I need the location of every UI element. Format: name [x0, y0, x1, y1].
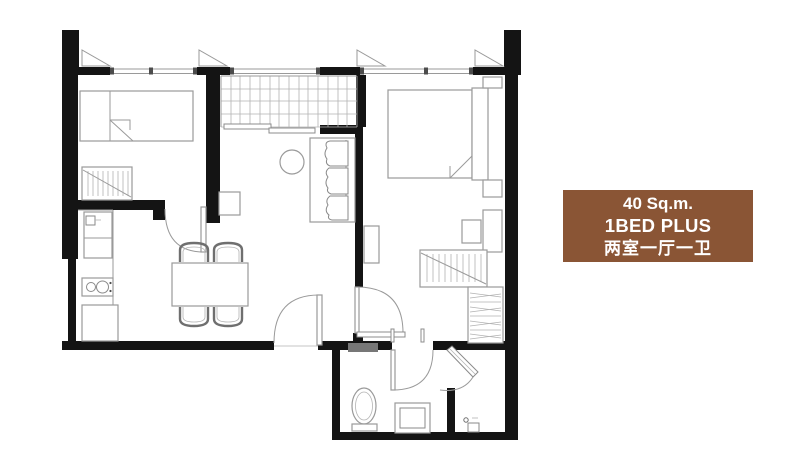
balcony-grid-icon: [221, 76, 357, 127]
wall-bottom-left: [62, 341, 274, 350]
chair-icon: [214, 307, 242, 326]
window-icon: [110, 67, 197, 75]
stove-icon: [82, 278, 113, 296]
floor-drain-icon: [464, 418, 479, 432]
toilet-icon: [352, 388, 377, 431]
round-table-icon: [280, 150, 304, 174]
unit-layout-cn-label: 两室一厅一卫: [604, 238, 712, 259]
unit-area-label: 40 Sq.m.: [623, 193, 693, 214]
wardrobe-icon: [420, 250, 487, 287]
door-swing-icon: [355, 287, 424, 342]
bedroom-2: [364, 77, 503, 343]
kitchen-cabinet-icon: [82, 305, 118, 341]
floor-plan-page: 40 Sq.m. 1BED PLUS 两室一厅一卫: [0, 0, 800, 473]
sofa-icon: [310, 138, 355, 222]
shelf-closet-icon: [468, 287, 503, 343]
wall-shower-divider: [447, 388, 455, 432]
windows: [82, 50, 503, 75]
window-icon: [230, 67, 320, 75]
wall-right: [505, 75, 518, 440]
kitchen-sink-icon: [84, 212, 112, 258]
door-swing-icon: [274, 295, 322, 346]
chair-icon: [214, 243, 242, 262]
desk-icon: [364, 226, 379, 263]
unit-type-label: 1BED PLUS: [605, 214, 712, 237]
window-flag-icon: [82, 50, 503, 66]
entrance-shower-door-icon: [440, 346, 478, 390]
double-bed-icon: [388, 88, 488, 180]
dining-table-icon: [172, 263, 248, 306]
wall-divider-bed1: [206, 67, 220, 223]
single-bed-icon: [80, 91, 193, 141]
cabinet-icon: [483, 210, 502, 252]
shelf-icon: [348, 343, 378, 352]
wall-divider-bed2: [355, 127, 363, 287]
door-swing-icon: [165, 207, 206, 252]
door-swing-icon: [391, 350, 433, 390]
wall-left: [62, 67, 78, 259]
wall-bath-left: [332, 350, 340, 440]
window-icon: [360, 67, 473, 75]
sliding-door-icon: [224, 124, 315, 133]
kitchen: [78, 210, 118, 341]
wardrobe-icon: [82, 167, 132, 200]
cabinet-icon: [219, 192, 240, 215]
nightstand-icon: [483, 180, 502, 197]
stool-icon: [462, 220, 481, 243]
unit-info-card: 40 Sq.m. 1BED PLUS 两室一厅一卫: [563, 190, 753, 262]
nightstand-icon: [483, 77, 502, 88]
chair-icon: [180, 307, 208, 326]
bedroom-1: [80, 91, 193, 200]
hall-living: [172, 138, 355, 326]
bathroom-sink-icon: [395, 403, 430, 433]
